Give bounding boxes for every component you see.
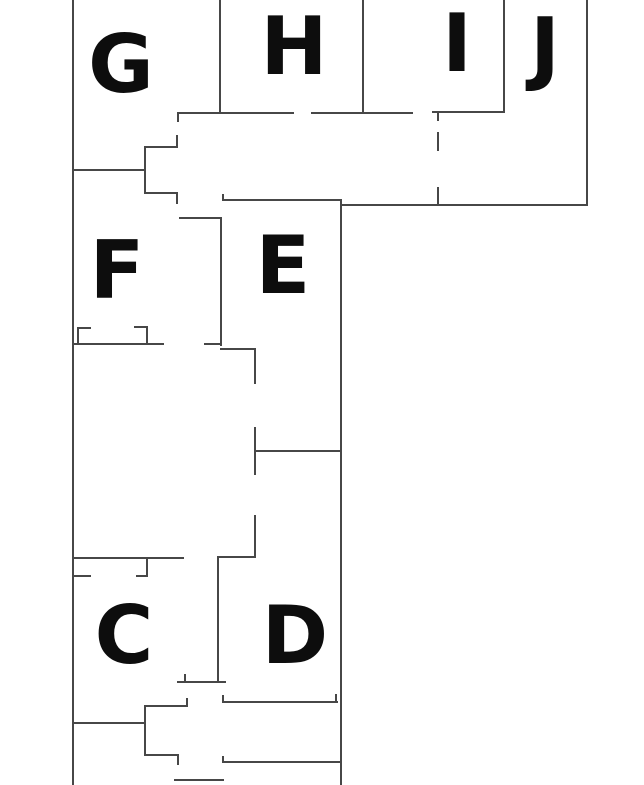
room-label-H: H — [261, 0, 328, 93]
floor-plan-svg: GHIJFECD — [0, 0, 644, 785]
room-label-D: D — [262, 589, 328, 682]
room-label-E: E — [256, 219, 311, 312]
room-label-F: F — [90, 224, 145, 317]
room-label-C: C — [95, 589, 154, 682]
room-label-I: I — [442, 0, 472, 90]
floorplan-page: GHIJFECD — [0, 0, 644, 785]
room-label-J: J — [525, 1, 560, 94]
room-label-G: G — [88, 18, 154, 111]
